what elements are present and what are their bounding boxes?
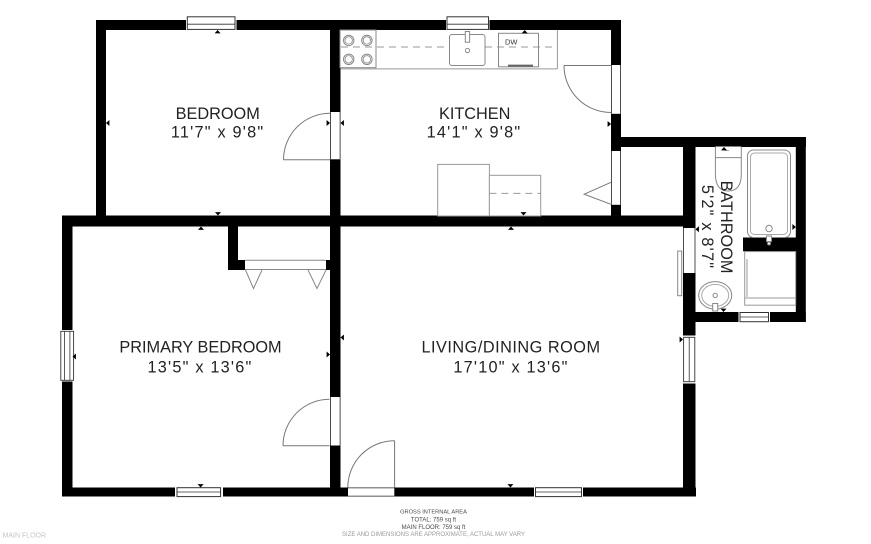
svg-text:14'1" x 9'8": 14'1" x 9'8": [427, 124, 522, 142]
svg-text:BEDROOM: BEDROOM: [176, 105, 260, 123]
svg-text:17'10" x 13'6": 17'10" x 13'6": [453, 359, 568, 377]
svg-text:GROSS INTERNAL AREA: GROSS INTERNAL AREA: [400, 510, 467, 516]
svg-text:TOTAL: 759 sq ft: TOTAL: 759 sq ft: [411, 517, 456, 523]
svg-text:LIVING/DINING ROOM: LIVING/DINING ROOM: [421, 339, 600, 357]
svg-text:SIZE AND DIMENSIONS ARE APPROX: SIZE AND DIMENSIONS ARE APPROXIMATE, ACT…: [342, 532, 525, 538]
svg-text:KITCHEN: KITCHEN: [439, 105, 510, 123]
svg-text:13'5" x 13'6": 13'5" x 13'6": [148, 359, 253, 377]
svg-text:5'2" x 8'7": 5'2" x 8'7": [698, 185, 716, 269]
svg-text:MAIN FLOOR: MAIN FLOOR: [3, 533, 47, 540]
svg-text:MAIN FLOOR: 759 sq ft: MAIN FLOOR: 759 sq ft: [402, 525, 466, 531]
svg-text:BATHROOM: BATHROOM: [717, 181, 735, 274]
svg-text:PRIMARY BEDROOM: PRIMARY BEDROOM: [119, 339, 281, 357]
svg-text:DW: DW: [505, 38, 518, 47]
svg-text:11'7" x 9'8": 11'7" x 9'8": [171, 124, 264, 142]
